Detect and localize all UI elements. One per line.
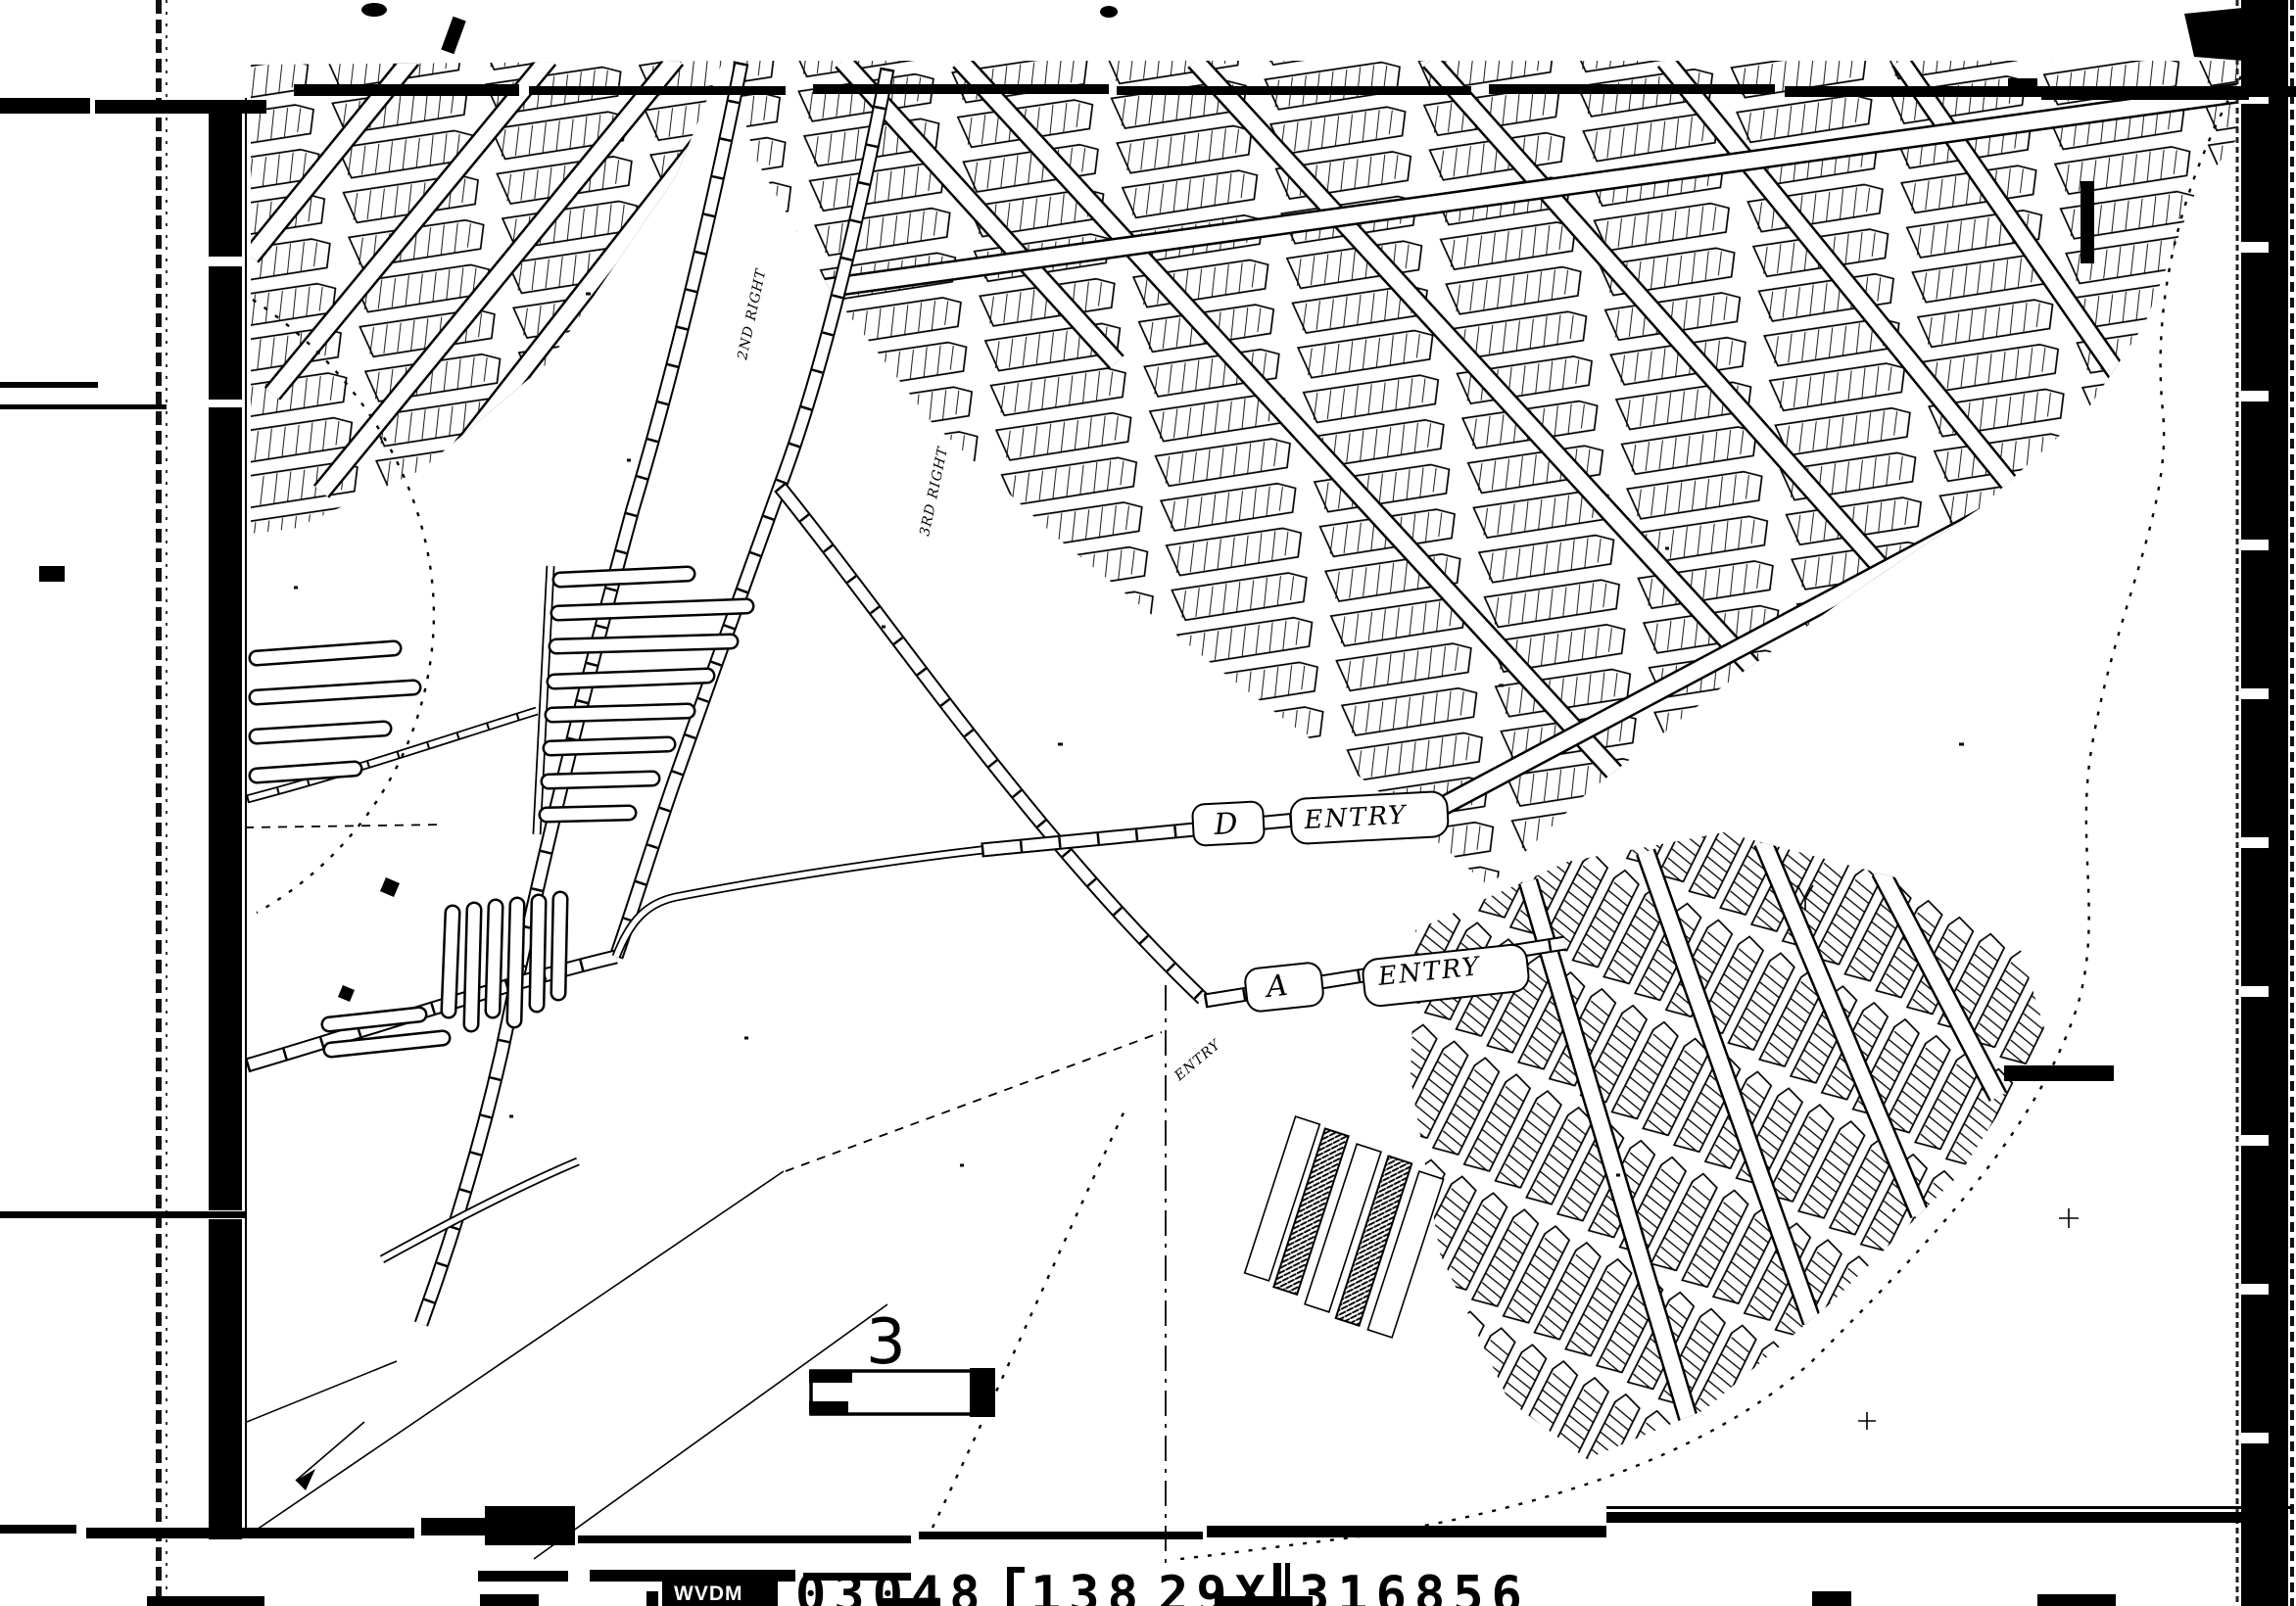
entry-small-label: ENTRY — [1172, 1036, 1225, 1084]
code-box-label: WVDM — [674, 1582, 743, 1605]
sheet-number: 3 — [866, 1306, 906, 1379]
footer-field-1: 03048 — [795, 1566, 988, 1606]
microfilm-footer: WVDM 03048 138 29X 316856 — [662, 1563, 1530, 1606]
bottom-film-edge — [0, 1506, 2292, 1606]
footer-field-3: 29X — [1158, 1566, 1273, 1606]
footer-field-2: 138 — [1030, 1566, 1146, 1606]
footer-field-4: 316856 — [1299, 1566, 1530, 1606]
mine-map-drawing: D ENTRY A ENTRY 2ND RIGHT 3RD RIGHT ENTR… — [245, 59, 2241, 1563]
d-entry-letter-label: D — [1213, 807, 1241, 842]
pillar-field-north — [730, 61, 2238, 886]
d-entry-word-label: ENTRY — [1303, 800, 1409, 835]
second-right-label: 2ND RIGHT — [735, 266, 770, 362]
old-workings-fingers — [257, 574, 746, 1050]
survey-lines — [245, 825, 1166, 1563]
scanned-microfilm-map-frame: D ENTRY A ENTRY 2ND RIGHT 3RD RIGHT ENTR… — [0, 0, 2296, 1606]
pillar-field-southeast-fan — [1411, 832, 2047, 1459]
third-right-label: 3RD RIGHT — [917, 445, 951, 538]
dark-pillar-bars — [1245, 1116, 1444, 1338]
scale-bar — [809, 1368, 995, 1417]
left-film-edge — [0, 0, 266, 1606]
